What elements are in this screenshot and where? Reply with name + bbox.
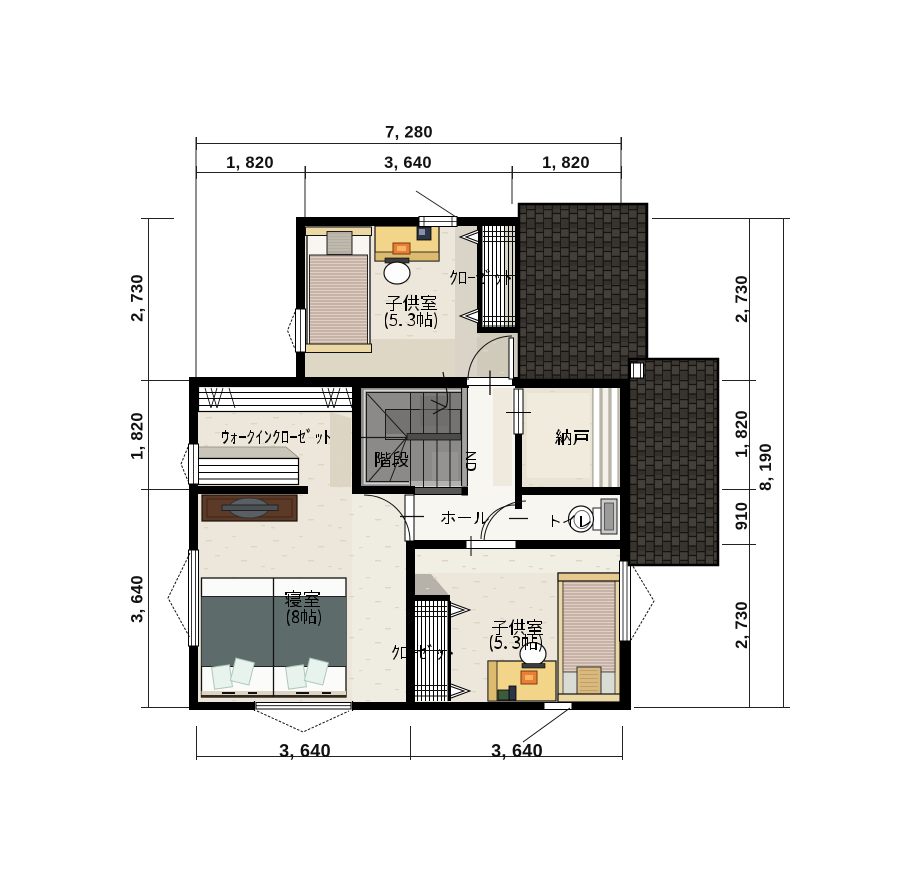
svg-text:8, 190: 8, 190 xyxy=(757,443,775,491)
svg-text:1, 820: 1, 820 xyxy=(226,154,274,172)
svg-text:1, 820: 1, 820 xyxy=(129,412,147,460)
svg-text:3, 640: 3, 640 xyxy=(279,741,331,761)
svg-text:2, 730: 2, 730 xyxy=(733,275,751,323)
svg-text:3, 640: 3, 640 xyxy=(129,575,147,623)
svg-text:3, 640: 3, 640 xyxy=(384,154,432,172)
svg-text:7, 280: 7, 280 xyxy=(385,124,433,142)
svg-text:2, 730: 2, 730 xyxy=(129,274,147,322)
svg-text:1, 820: 1, 820 xyxy=(733,410,751,458)
svg-text:3, 640: 3, 640 xyxy=(491,741,543,761)
svg-text:910: 910 xyxy=(733,502,751,530)
svg-text:1, 820: 1, 820 xyxy=(542,154,590,172)
svg-text:2, 730: 2, 730 xyxy=(733,601,751,649)
